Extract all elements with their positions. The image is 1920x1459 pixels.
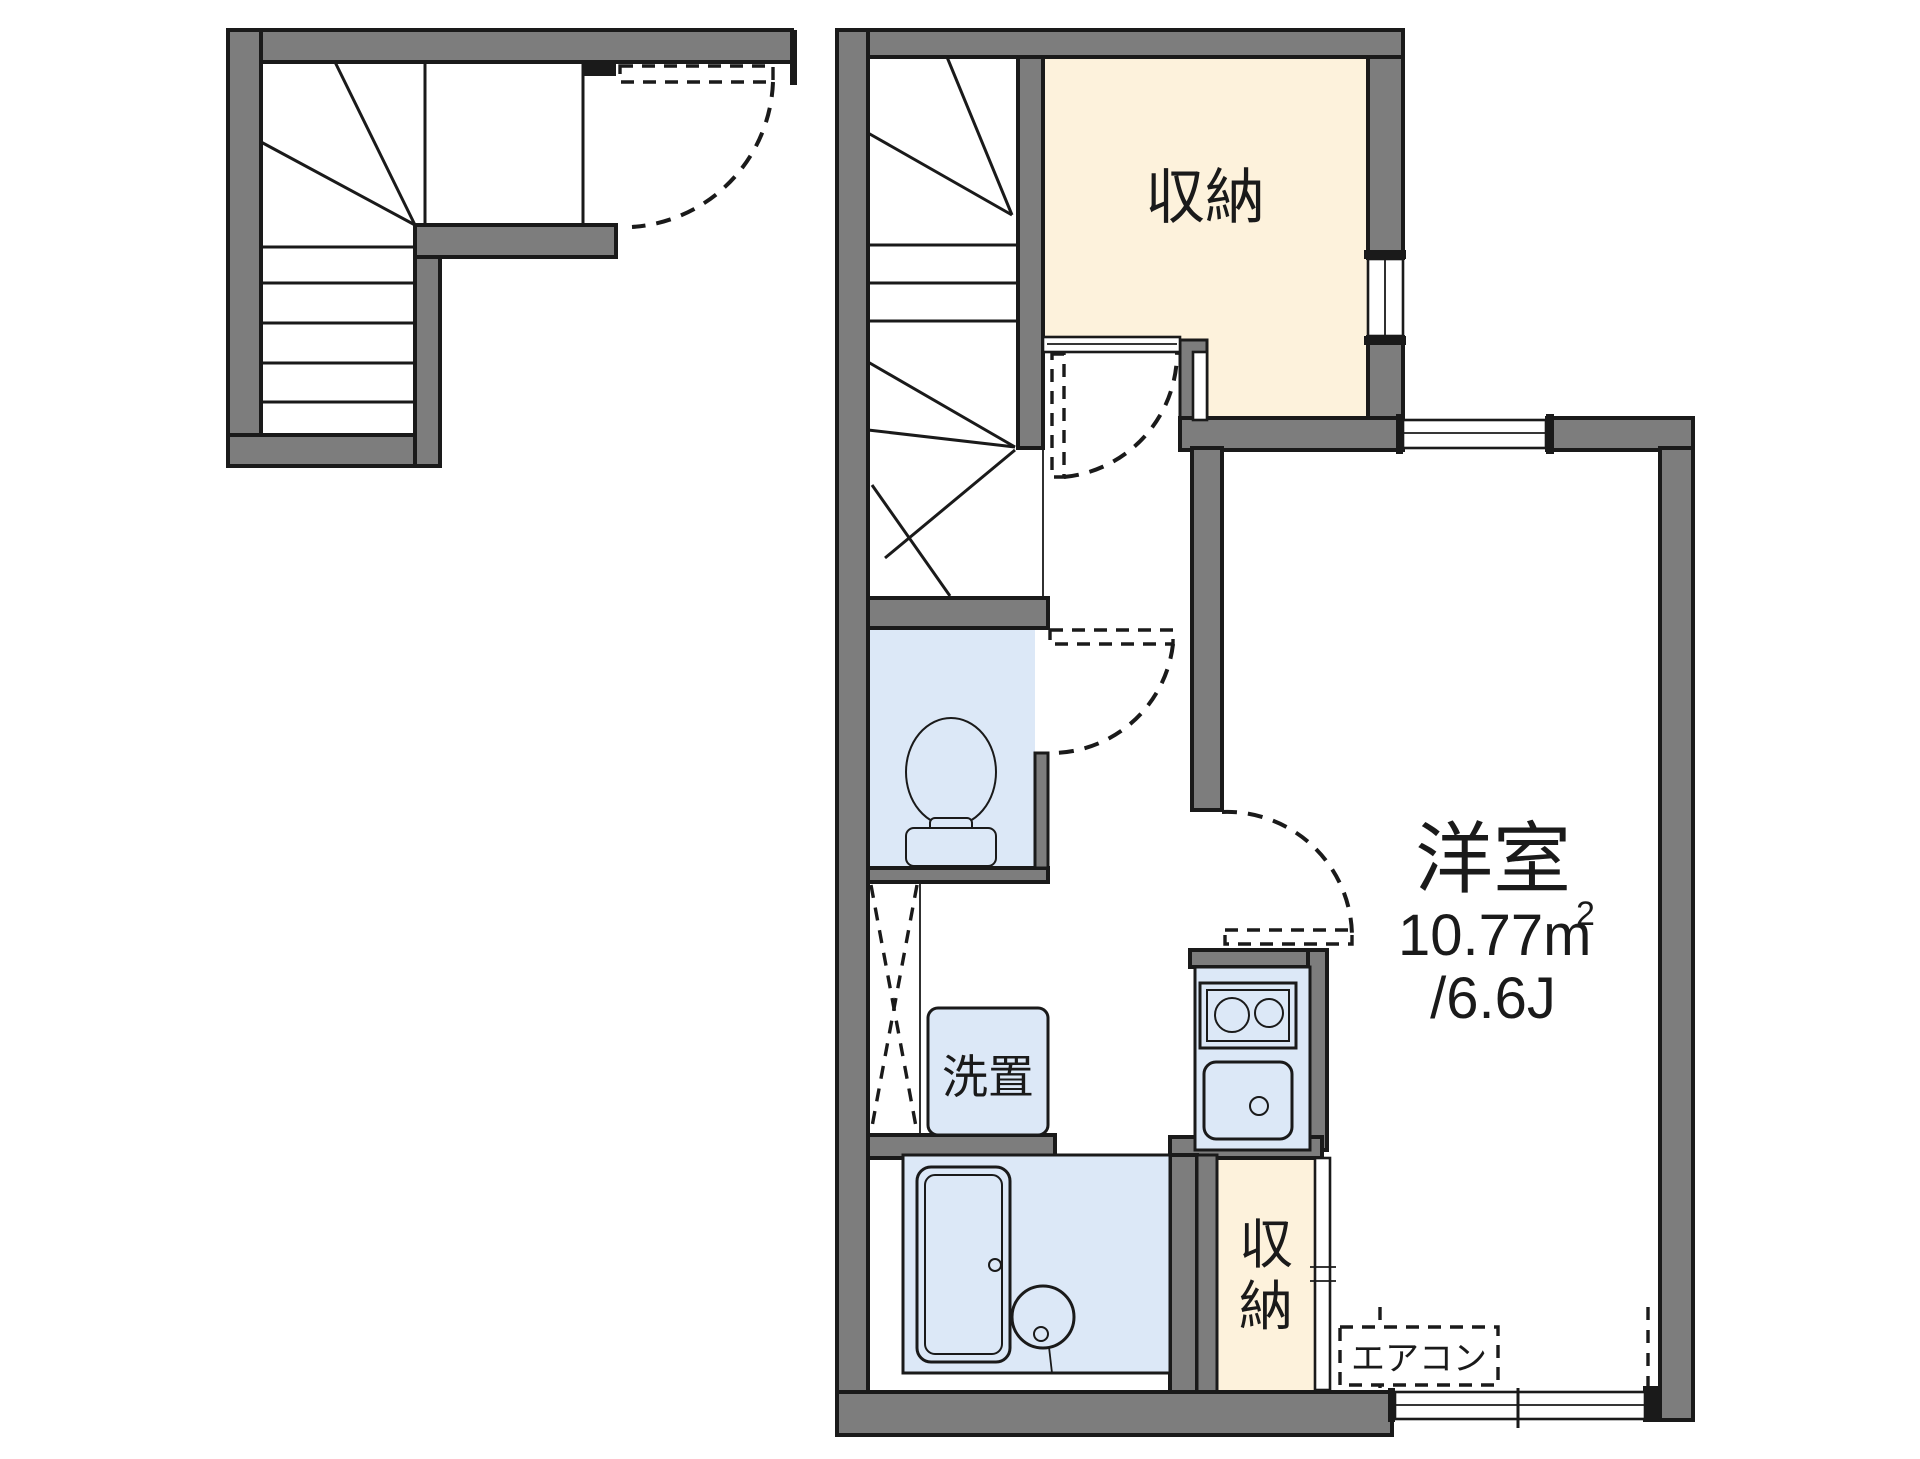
wall-segment: [1368, 57, 1403, 258]
wall-segment: [868, 598, 1048, 628]
stair-winder-line: [868, 133, 1012, 215]
stair-winder-line: [872, 485, 950, 596]
western-room-label-group: 洋室 10.77m 2 /6.6J: [1398, 815, 1595, 1031]
stair-winder-line: [947, 57, 1012, 215]
window-cap: [1364, 250, 1406, 259]
door-swing-arc: [632, 82, 773, 227]
floor-plan-page: 洗置 エ: [0, 0, 1920, 1459]
wall-segment: [415, 225, 440, 466]
kitchen-sink: [1204, 1062, 1292, 1139]
upper-stair-section: [228, 30, 797, 466]
washer-label: 洗置: [942, 1051, 1034, 1103]
top-window: [1403, 420, 1546, 448]
stair-winder-line: [261, 142, 415, 225]
toilet-bowl: [906, 718, 996, 826]
wall-segment: [228, 30, 792, 62]
stove-burner: [1255, 999, 1283, 1027]
wall-segment: [1192, 448, 1222, 810]
closet-leaf: [1193, 352, 1207, 420]
wall-segment: [868, 868, 1048, 882]
window-cap: [1364, 336, 1406, 345]
wall-segment: [228, 30, 261, 466]
stair-winder-line: [335, 62, 415, 225]
door-open-panel: [1052, 354, 1064, 477]
main-floor-section: 洗置 エ: [837, 30, 1693, 1435]
wall-segment: [1197, 1155, 1217, 1392]
western-room-tatami: /6.6J: [1430, 966, 1556, 1031]
wall-segment: [1660, 448, 1693, 1420]
wall-segment: [1180, 418, 1402, 450]
entry-door-swing: [620, 66, 773, 227]
hall-door-swing: [1052, 352, 1177, 477]
western-room-area: 10.77m: [1398, 903, 1591, 968]
wall-segment: [1547, 418, 1693, 450]
storage-bottom-label-char2: 納: [1239, 1277, 1293, 1337]
western-room-label: 洋室: [1415, 815, 1571, 903]
door-swing-arc: [1064, 352, 1177, 477]
aircon-label: エアコン: [1351, 1340, 1487, 1378]
wall-segment: [837, 30, 1403, 57]
sink-drain: [1250, 1097, 1268, 1115]
toilet-door-swing: [1048, 630, 1173, 753]
door-jamb-cap: [583, 62, 616, 76]
wall-segment: [1018, 57, 1043, 448]
wall-segment: [228, 435, 440, 466]
wall-segment: [837, 30, 868, 1435]
folding-closet: [871, 882, 920, 1135]
western-room-door-swing: [1222, 812, 1352, 944]
bathroom: [903, 1155, 1170, 1373]
wall-segment: [837, 1392, 1392, 1435]
toilet-tank: [906, 828, 996, 866]
wall-segment: [1035, 753, 1048, 868]
washer-space: 洗置: [928, 1008, 1048, 1135]
door-open-panel: [1050, 630, 1173, 644]
stair-winder-line: [868, 362, 1015, 447]
storage-bottom-door: [1310, 1158, 1336, 1390]
door-open-panel: [620, 66, 773, 82]
stove-burner: [1215, 998, 1249, 1032]
door-swing-arc: [1222, 812, 1352, 937]
western-room-area-sup: 2: [1576, 895, 1595, 933]
tub-drain: [989, 1259, 1001, 1271]
upper-stairs: [261, 62, 425, 402]
wall-end-cap: [790, 30, 797, 85]
kitchen-unit: [1195, 967, 1310, 1150]
closet-leaf: [1315, 1158, 1330, 1390]
floor-plan-canvas: 洗置 エ: [0, 0, 1920, 1459]
storage-bottom-label-char1: 収: [1239, 1215, 1293, 1275]
door-swing-arc: [1048, 644, 1173, 753]
basin-drain: [1034, 1327, 1048, 1341]
toilet-fixture: [906, 718, 996, 866]
aircon-marker: エアコン: [1340, 1327, 1498, 1385]
door-open-panel: [1225, 930, 1352, 944]
wall-segment: [1170, 1155, 1197, 1392]
wall-segment: [415, 225, 616, 257]
stair-winder-line: [885, 450, 1015, 558]
storage-top-label: 収納: [1145, 164, 1265, 231]
